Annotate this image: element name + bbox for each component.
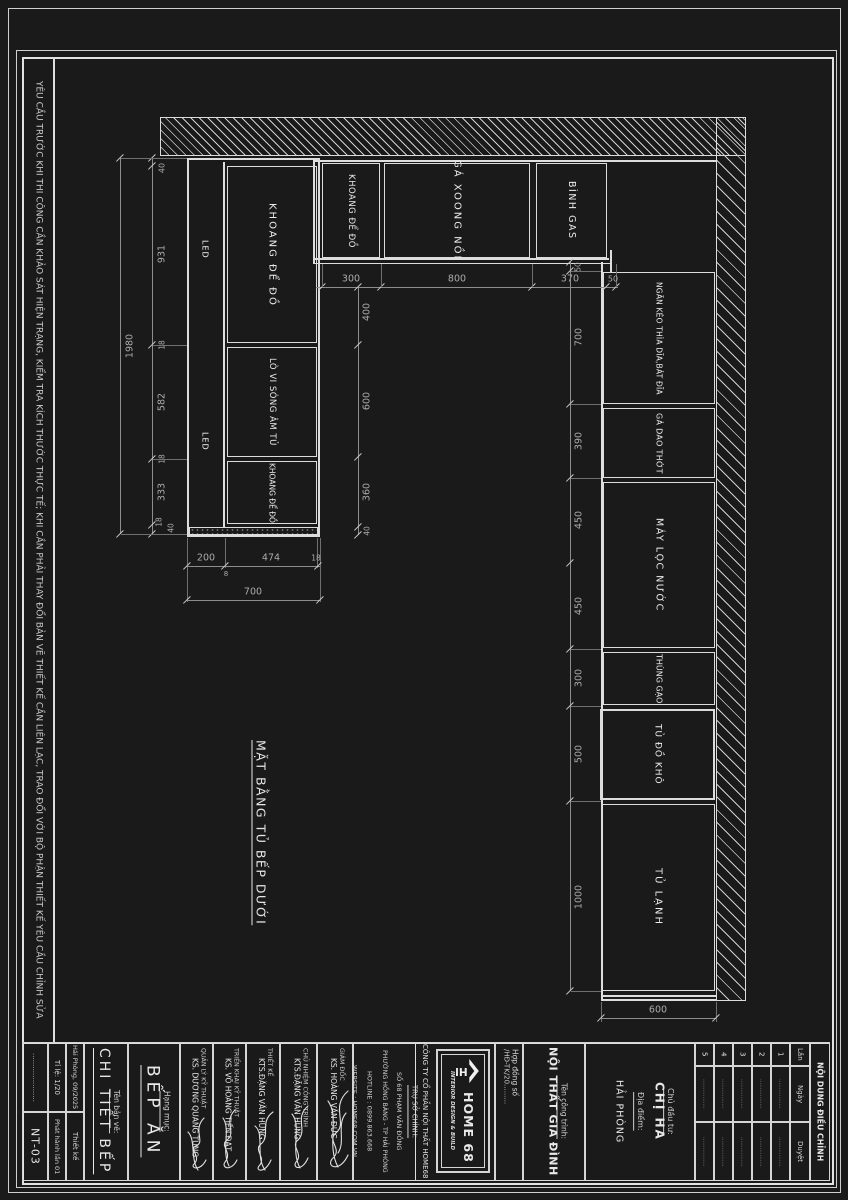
dim-lb-18: 18 bbox=[311, 554, 321, 563]
dim-br-600: 600 bbox=[649, 1005, 667, 1016]
tb-project: Tên công trình: NỘI THẤT GIA ĐÌNH bbox=[523, 1042, 585, 1181]
revision-title: NỘI DUNG ĐIỀU CHỈNH bbox=[810, 1042, 830, 1181]
project-name: NỘI THẤT GIA ĐÌNH bbox=[547, 1047, 560, 1176]
rev-row-5-duyet: ................. bbox=[695, 1122, 714, 1181]
dim-left-40a: 40 bbox=[158, 163, 167, 173]
rev-row-4-ngay: ................. bbox=[714, 1066, 733, 1122]
dim-line-top bbox=[316, 287, 618, 288]
led-label: LED bbox=[201, 240, 210, 259]
rev-row-2-duyet: ................. bbox=[752, 1122, 771, 1181]
tb-sheet-number: NT-03 bbox=[22, 1112, 48, 1181]
issue-label: Phát hành lần 01 bbox=[53, 1119, 61, 1174]
cabinet-label: GÁ XOONG NỒI bbox=[452, 160, 463, 260]
cabinet-label: MÁY LỌC NƯỚC bbox=[654, 518, 665, 612]
cabinet-top-storage: KHOANG ĐỂ ĐỒ bbox=[322, 163, 380, 258]
led-label: LED bbox=[201, 432, 210, 451]
tb-client: Chủ đầu tư: CHỊ HA Địa điểm: HẢI PHÒNG bbox=[585, 1042, 695, 1181]
svg-text:HN: HN bbox=[456, 1065, 468, 1077]
cabinet-dry-pantry: TỦ ĐỒ KHÔ bbox=[600, 709, 715, 800]
signature bbox=[215, 1106, 243, 1176]
margin-note-text: YÊU CẦU TRƯỚC KHI THI CÔNG CẦN KHẢO SÁT … bbox=[34, 81, 44, 1019]
rev-row-3-ngay: ................. bbox=[733, 1066, 752, 1122]
dim-right-500: 500 bbox=[574, 745, 585, 763]
dim-line-mid bbox=[358, 287, 359, 535]
drawing-title-wrap: MẶT BẰNG TỦ BẾP DƯỚI bbox=[246, 745, 276, 920]
signature bbox=[182, 1112, 210, 1176]
place-date: Hải Phòng, 09/2025 bbox=[71, 1045, 79, 1109]
rev-row-4-num: 4 bbox=[714, 1042, 733, 1066]
cabinet-label: KHOANG ĐỂ ĐỒ bbox=[268, 463, 277, 523]
revision-title-text: NỘI DUNG ĐIỀU CHỈNH bbox=[816, 1062, 825, 1161]
dim-right-50: 50 bbox=[574, 262, 583, 272]
rev-row-5-num: 5 bbox=[695, 1042, 714, 1066]
location-name: HẢI PHÒNG bbox=[613, 1080, 623, 1143]
sheet-number: NT-03 bbox=[29, 1128, 42, 1165]
rev-row-2-ngay: ................. bbox=[752, 1066, 771, 1122]
company-address1: SỐ 68 PHẠM VĂN ĐỒNG bbox=[391, 1050, 406, 1173]
dim-mid-600: 600 bbox=[362, 392, 373, 410]
left-block-divider bbox=[223, 162, 225, 528]
contract-label: Hợp đồng số bbox=[511, 1049, 520, 1108]
cabinet-label: BÌNH GAS bbox=[566, 181, 577, 239]
right-col-bottom-line-a bbox=[601, 995, 716, 997]
dim-mid-360: 360 bbox=[362, 483, 373, 501]
rev-row-3-num: 3 bbox=[733, 1042, 752, 1066]
cabinet-gas-bottle: BÌNH GAS bbox=[536, 163, 607, 258]
tb-drawing-name: Tên bản vẽ: CHI TIẾT BẾP bbox=[84, 1042, 128, 1181]
cabinet-water-filter: MÁY LỌC NƯỚC bbox=[603, 482, 715, 648]
dim-line-left-total bbox=[120, 158, 121, 534]
company-hotline: HOTLINE : 0899.863.668 bbox=[361, 1050, 376, 1173]
tb-scale: Tỉ lệ: 1/20 bbox=[48, 1042, 66, 1112]
revision-header-duyet: Duyệt bbox=[790, 1122, 810, 1181]
rev-row-3-duyet: ................. bbox=[733, 1122, 752, 1181]
revision-header-lan: Lần bbox=[790, 1042, 810, 1066]
dim-lb-474: 474 bbox=[262, 553, 280, 564]
tb-design-word: Thiết kế bbox=[66, 1112, 84, 1181]
dim-top-800: 800 bbox=[448, 274, 466, 285]
led-strip-lower: LED bbox=[196, 420, 214, 462]
dim-line-bottomright bbox=[601, 1018, 716, 1019]
rev-row-5-ngay: ................. bbox=[695, 1066, 714, 1122]
cabinet-left-storage-top: KHOANG ĐỂ ĐỒ bbox=[227, 166, 317, 343]
location-label: Địa điểm: bbox=[635, 1080, 644, 1143]
dim-left-18b: 18 bbox=[158, 454, 167, 464]
gas-corner-stub bbox=[610, 250, 612, 272]
rev-row-1-num: 1 bbox=[771, 1042, 790, 1066]
tb-dots-cell: ...................... bbox=[22, 1042, 48, 1112]
category-name: BẾP ĂN bbox=[143, 1065, 163, 1157]
company-name-wrap: CÔNG TY CỔ PHẦN NỘI THẤT HOME68 bbox=[416, 1042, 434, 1181]
margin-note: YÊU CẦU TRƯỚC KHI THI CÔNG CẦN KHẢO SÁT … bbox=[24, 57, 53, 1042]
dim-line-leftbottom-2 bbox=[187, 600, 320, 601]
category-label: Hạng mục: bbox=[163, 1065, 172, 1157]
home68-logo-text: HOME 68 bbox=[461, 1092, 476, 1163]
dim-top-50: 50 bbox=[608, 275, 618, 284]
wall-top bbox=[160, 117, 746, 156]
cabinet-label: KHOANG ĐỂ ĐỒ bbox=[346, 174, 356, 248]
drawing-name-label: Tên bản vẽ: bbox=[112, 1048, 121, 1174]
left-block-base bbox=[189, 527, 318, 535]
cabinet-label: KHOANG ĐỂ ĐỒ bbox=[267, 203, 278, 307]
dim-lb-200: 200 bbox=[197, 553, 215, 564]
revision-header-ngay: Ngày bbox=[790, 1066, 810, 1122]
home68-logo-subtitle: INTERIOR DESIGN & BUILD bbox=[449, 1059, 455, 1163]
cabinet-label: GÁ DAO THỚT bbox=[655, 413, 664, 474]
home68-logo-icon: HN bbox=[456, 1058, 480, 1084]
cabinet-left-storage-bottom: KHOANG ĐỂ ĐỒ bbox=[227, 461, 317, 524]
rev-col-duyet: Duyệt bbox=[796, 1141, 804, 1162]
signature bbox=[249, 1108, 277, 1176]
company-address-block: TRỤ SỞ CHÍNH: SỐ 68 PHẠM VĂN ĐỒNG PHƯỜNG… bbox=[353, 1042, 415, 1181]
margin-divider bbox=[53, 57, 55, 1042]
cabinet-label: TỦ ĐỒ KHÔ bbox=[653, 724, 663, 785]
dim-mid-40: 40 bbox=[363, 526, 372, 536]
dim-top-300: 300 bbox=[342, 274, 360, 285]
dim-right-1000: 1000 bbox=[574, 885, 585, 909]
dim-lb-700: 700 bbox=[244, 587, 262, 598]
cabinet-label: THÙNG GẠO bbox=[655, 654, 664, 703]
signature bbox=[284, 1100, 314, 1176]
cabinet-label: NGĂN KÉO THÌA DĨA,BÁT ĐĨA bbox=[655, 282, 664, 395]
drawing-sheet: YÊU CẦU TRƯỚC KHI THI CÔNG CẦN KHẢO SÁT … bbox=[0, 0, 848, 1200]
dim-line-leftbottom-1 bbox=[187, 566, 320, 567]
cabinet-label: TỦ LẠNH bbox=[653, 868, 664, 926]
dim-right-300: 300 bbox=[574, 669, 585, 687]
dim-lb-8: 8 bbox=[224, 570, 228, 578]
cabinet-microwave: LÒ VI SÓNG ÂM TỦ bbox=[227, 347, 317, 457]
contract-value: /HĐ-TK/20......... bbox=[503, 1049, 511, 1108]
client-label: Chủ đầu tư: bbox=[665, 1080, 674, 1143]
tb-contract: Hợp đồng số /HĐ-TK/20......... bbox=[495, 1042, 523, 1181]
right-col-bottom-line-b bbox=[601, 999, 716, 1001]
dim-line-right bbox=[570, 262, 571, 991]
client-name: CHỊ HA bbox=[652, 1080, 665, 1143]
rev-row-1-ngay: ................. bbox=[771, 1066, 790, 1122]
dim-left-582: 582 bbox=[157, 393, 168, 411]
drawing-title: MẶT BẰNG TỦ BẾP DƯỚI bbox=[254, 740, 269, 925]
counter-front-line-a bbox=[313, 258, 609, 260]
scale-label: Tỉ lệ: 1/20 bbox=[53, 1060, 61, 1095]
cabinet-pot-rack: GÁ XOONG NỒI bbox=[384, 163, 530, 258]
dim-left-18c: 18 bbox=[155, 517, 164, 527]
rev-col-ngay: Ngày bbox=[796, 1085, 804, 1103]
rev-row-1-duyet: ................. bbox=[771, 1122, 790, 1181]
cabinet-rice-bin: THÙNG GẠO bbox=[603, 652, 715, 705]
dim-left-18a: 18 bbox=[158, 340, 167, 350]
led-strip-upper: LED bbox=[196, 228, 214, 270]
wall-right bbox=[716, 117, 746, 1001]
dim-left-931: 931 bbox=[157, 245, 168, 263]
dim-right-390: 390 bbox=[574, 432, 585, 450]
tb-dots: ...................... bbox=[31, 1053, 39, 1102]
company-website: WEBSITE : HOME68.COM.VN bbox=[347, 1050, 362, 1173]
dim-line-left-chain bbox=[152, 158, 153, 534]
design-word: Thiết kế bbox=[71, 1132, 79, 1160]
rev-row-4-duyet: ................. bbox=[714, 1122, 733, 1181]
tb-place-date: Hải Phòng, 09/2025 bbox=[66, 1042, 84, 1112]
dim-right-700: 700 bbox=[574, 328, 585, 346]
company-address2: PHƯỜNG HỒNG BÀNG - TP HẢI PHÒNG bbox=[376, 1050, 390, 1173]
dim-left-40b: 40 bbox=[167, 523, 176, 533]
company-name: CÔNG TY CỔ PHẦN NỘI THẤT HOME68 bbox=[421, 1044, 429, 1178]
dim-left-333: 333 bbox=[157, 483, 168, 501]
cabinet-drawer-cutlery: NGĂN KÉO THÌA DĨA,BÁT ĐĨA bbox=[603, 272, 715, 404]
project-label: Tên công trình: bbox=[560, 1047, 569, 1176]
cabinet-knife-rack: GÁ DAO THỚT bbox=[603, 408, 715, 478]
rev-row-2-num: 2 bbox=[752, 1042, 771, 1066]
dim-right-450a: 450 bbox=[574, 511, 585, 529]
tb-category: Hạng mục: BẾP ĂN bbox=[128, 1042, 180, 1181]
dim-mid-400: 400 bbox=[362, 303, 373, 321]
drawing-name: CHI TIẾT BẾP bbox=[96, 1048, 112, 1174]
dim-right-450b: 450 bbox=[574, 597, 585, 615]
company-logo-box: HN HOME 68 INTERIOR DESIGN & BUILD bbox=[436, 1049, 490, 1173]
dim-left-total: 1980 bbox=[125, 334, 136, 358]
cabinet-label: LÒ VI SÓNG ÂM TỦ bbox=[267, 358, 277, 446]
rev-col-lan: Lần bbox=[796, 1048, 804, 1061]
tb-issue: Phát hành lần 01 bbox=[48, 1112, 66, 1181]
counter-back-line bbox=[313, 160, 716, 162]
cabinet-fridge: TỦ LẠNH bbox=[601, 804, 715, 991]
